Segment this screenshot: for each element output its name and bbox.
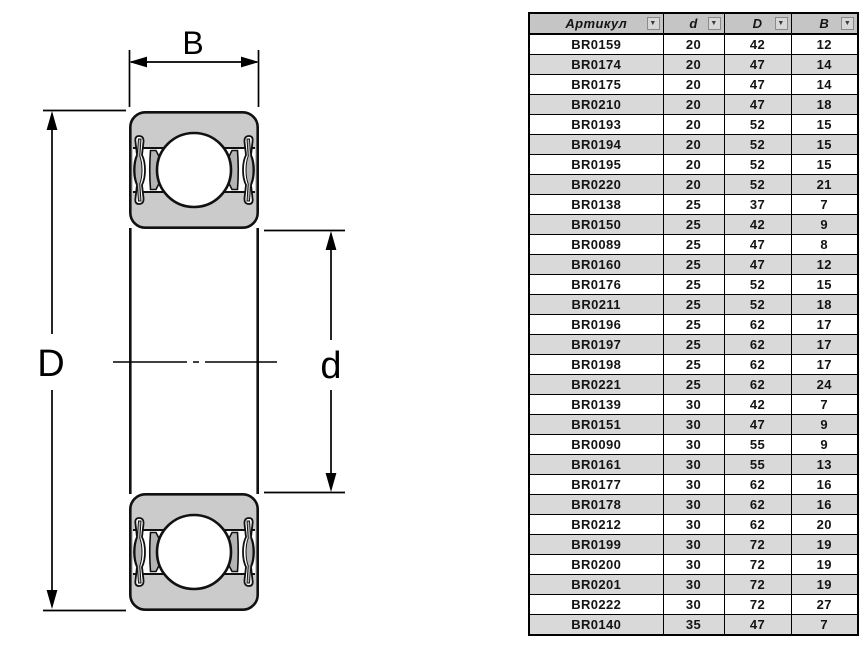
table-row: BR0193205215 <box>529 115 858 135</box>
cell-B: 12 <box>791 255 858 275</box>
cell-d: 20 <box>663 175 724 195</box>
cell-article: BR0159 <box>529 34 663 55</box>
table-row: BR0211255218 <box>529 295 858 315</box>
cell-article: BR0175 <box>529 75 663 95</box>
table-row: BR0200307219 <box>529 555 858 575</box>
cell-B: 9 <box>791 435 858 455</box>
cell-D: 72 <box>724 555 791 575</box>
cell-D: 52 <box>724 135 791 155</box>
cell-B: 7 <box>791 195 858 215</box>
table-row: BR0201307219 <box>529 575 858 595</box>
cell-article: BR0221 <box>529 375 663 395</box>
cell-article: BR0150 <box>529 215 663 235</box>
cell-B: 21 <box>791 175 858 195</box>
cell-D: 55 <box>724 455 791 475</box>
cell-B: 7 <box>791 395 858 415</box>
cell-article: BR0200 <box>529 555 663 575</box>
cell-D: 72 <box>724 535 791 555</box>
cell-B: 27 <box>791 595 858 615</box>
filter-dropdown-button-D[interactable]: ▼ <box>775 17 788 30</box>
cell-d: 25 <box>663 215 724 235</box>
bearing-spec-table: Артикул ▼ d ▼ D ▼ B ▼ <box>528 12 859 636</box>
cell-D: 52 <box>724 155 791 175</box>
cell-article: BR0210 <box>529 95 663 115</box>
table-row: BR013825377 <box>529 195 858 215</box>
cell-D: 52 <box>724 175 791 195</box>
cell-d: 25 <box>663 235 724 255</box>
cell-B: 12 <box>791 34 858 55</box>
cell-D: 37 <box>724 195 791 215</box>
cell-B: 14 <box>791 55 858 75</box>
filter-dropdown-button-d[interactable]: ▼ <box>708 17 721 30</box>
table-row: BR013930427 <box>529 395 858 415</box>
cell-D: 52 <box>724 275 791 295</box>
cell-D: 47 <box>724 255 791 275</box>
column-header-article: Артикул ▼ <box>529 13 663 34</box>
cell-d: 20 <box>663 95 724 115</box>
column-header-B: B ▼ <box>791 13 858 34</box>
cell-D: 42 <box>724 395 791 415</box>
column-header-B-label: B <box>819 16 829 31</box>
table-row: BR0210204718 <box>529 95 858 115</box>
cell-B: 19 <box>791 555 858 575</box>
cell-article: BR0197 <box>529 335 663 355</box>
table-row: BR015130479 <box>529 415 858 435</box>
table-header-row: Артикул ▼ d ▼ D ▼ B ▼ <box>529 13 858 34</box>
cell-D: 72 <box>724 595 791 615</box>
cell-article: BR0161 <box>529 455 663 475</box>
dimension-d-inner-label: d <box>320 345 341 387</box>
bearing-lower-section <box>130 494 257 609</box>
cell-B: 17 <box>791 335 858 355</box>
cell-d: 25 <box>663 315 724 335</box>
cell-d: 25 <box>663 375 724 395</box>
column-header-D: D ▼ <box>724 13 791 34</box>
cell-D: 47 <box>724 415 791 435</box>
cell-d: 30 <box>663 455 724 475</box>
bore-lines <box>130 228 257 494</box>
cell-B: 9 <box>791 215 858 235</box>
cell-d: 30 <box>663 435 724 455</box>
cell-article: BR0199 <box>529 535 663 555</box>
cell-article: BR0174 <box>529 55 663 75</box>
cell-D: 62 <box>724 315 791 335</box>
cell-B: 19 <box>791 575 858 595</box>
table-row: BR009030559 <box>529 435 858 455</box>
cell-D: 62 <box>724 355 791 375</box>
cell-article: BR0139 <box>529 395 663 415</box>
cell-d: 30 <box>663 555 724 575</box>
cell-B: 9 <box>791 415 858 435</box>
cell-B: 15 <box>791 135 858 155</box>
cell-article: BR0090 <box>529 435 663 455</box>
table-row: BR0194205215 <box>529 135 858 155</box>
cell-B: 24 <box>791 375 858 395</box>
table-row: BR0177306216 <box>529 475 858 495</box>
cell-d: 30 <box>663 415 724 435</box>
table-row: BR0178306216 <box>529 495 858 515</box>
cell-d: 20 <box>663 55 724 75</box>
cell-article: BR0194 <box>529 135 663 155</box>
cell-article: BR0178 <box>529 495 663 515</box>
cell-B: 15 <box>791 155 858 175</box>
table-row: BR0174204714 <box>529 55 858 75</box>
data-table-panel: Артикул ▼ d ▼ D ▼ B ▼ <box>528 12 858 636</box>
cell-d: 30 <box>663 595 724 615</box>
cell-article: BR0196 <box>529 315 663 335</box>
column-header-D-label: D <box>753 16 763 31</box>
cell-article: BR0198 <box>529 355 663 375</box>
cell-article: BR0193 <box>529 115 663 135</box>
filter-dropdown-icon: ▼ <box>649 18 656 29</box>
cell-D: 47 <box>724 615 791 636</box>
column-header-d-label: d <box>689 16 697 31</box>
filter-dropdown-button-article[interactable]: ▼ <box>647 17 660 30</box>
column-header-d: d ▼ <box>663 13 724 34</box>
cell-D: 42 <box>724 215 791 235</box>
table-row: BR0161305513 <box>529 455 858 475</box>
cell-D: 47 <box>724 235 791 255</box>
cell-D: 42 <box>724 34 791 55</box>
table-row: BR015025429 <box>529 215 858 235</box>
cell-B: 8 <box>791 235 858 255</box>
table-row: BR0197256217 <box>529 335 858 355</box>
cell-B: 18 <box>791 95 858 115</box>
table-row: BR0160254712 <box>529 255 858 275</box>
cell-d: 25 <box>663 195 724 215</box>
filter-dropdown-icon: ▼ <box>777 18 784 29</box>
cell-B: 13 <box>791 455 858 475</box>
cell-article: BR0138 <box>529 195 663 215</box>
cell-D: 62 <box>724 375 791 395</box>
cell-B: 17 <box>791 355 858 375</box>
cell-B: 15 <box>791 275 858 295</box>
cell-d: 30 <box>663 575 724 595</box>
cell-D: 62 <box>724 475 791 495</box>
cell-D: 47 <box>724 95 791 115</box>
cell-d: 25 <box>663 275 724 295</box>
cell-B: 17 <box>791 315 858 335</box>
cell-d: 25 <box>663 355 724 375</box>
cell-d: 30 <box>663 475 724 495</box>
cell-article: BR0220 <box>529 175 663 195</box>
diagram-panel: B D d <box>0 0 520 650</box>
cell-article: BR0195 <box>529 155 663 175</box>
cell-B: 16 <box>791 475 858 495</box>
cell-B: 15 <box>791 115 858 135</box>
table-row: BR014035477 <box>529 615 858 636</box>
dimension-d-outer-label: D <box>37 343 64 385</box>
table-body: BR0159204212BR0174204714BR0175204714BR02… <box>529 34 858 635</box>
cell-d: 20 <box>663 75 724 95</box>
cell-d: 25 <box>663 295 724 315</box>
cell-d: 25 <box>663 255 724 275</box>
cell-d: 30 <box>663 535 724 555</box>
cell-article: BR0177 <box>529 475 663 495</box>
cell-d: 20 <box>663 155 724 175</box>
table-row: BR0221256224 <box>529 375 858 395</box>
cell-B: 7 <box>791 615 858 636</box>
cell-B: 18 <box>791 295 858 315</box>
cell-B: 14 <box>791 75 858 95</box>
table-row: BR0175204714 <box>529 75 858 95</box>
cell-d: 20 <box>663 115 724 135</box>
cell-D: 62 <box>724 335 791 355</box>
table-row: BR0222307227 <box>529 595 858 615</box>
table-row: BR0198256217 <box>529 355 858 375</box>
cell-article: BR0089 <box>529 235 663 255</box>
filter-dropdown-icon: ▼ <box>710 18 717 29</box>
cell-article: BR0201 <box>529 575 663 595</box>
cell-D: 55 <box>724 435 791 455</box>
cell-d: 35 <box>663 615 724 636</box>
filter-dropdown-icon: ▼ <box>844 18 851 29</box>
cell-d: 20 <box>663 135 724 155</box>
cell-d: 30 <box>663 495 724 515</box>
table-row: BR0212306220 <box>529 515 858 535</box>
cell-article: BR0160 <box>529 255 663 275</box>
table-row: BR008925478 <box>529 235 858 255</box>
cell-article: BR0176 <box>529 275 663 295</box>
cell-article: BR0211 <box>529 295 663 315</box>
cell-D: 72 <box>724 575 791 595</box>
cell-article: BR0151 <box>529 415 663 435</box>
filter-dropdown-button-B[interactable]: ▼ <box>841 17 854 30</box>
cell-d: 20 <box>663 34 724 55</box>
table-row: BR0199307219 <box>529 535 858 555</box>
table-row: BR0195205215 <box>529 155 858 175</box>
cell-B: 20 <box>791 515 858 535</box>
cell-article: BR0222 <box>529 595 663 615</box>
table-row: BR0220205221 <box>529 175 858 195</box>
cell-D: 52 <box>724 295 791 315</box>
cell-article: BR0212 <box>529 515 663 535</box>
cell-D: 47 <box>724 75 791 95</box>
cell-article: BR0140 <box>529 615 663 636</box>
bearing-cross-section-diagram: B D d <box>0 0 520 650</box>
cell-d: 30 <box>663 395 724 415</box>
table-row: BR0196256217 <box>529 315 858 335</box>
table-row: BR0159204212 <box>529 34 858 55</box>
cell-B: 16 <box>791 495 858 515</box>
page: B D d <box>0 0 867 650</box>
table-row: BR0176255215 <box>529 275 858 295</box>
cell-D: 62 <box>724 495 791 515</box>
cell-d: 25 <box>663 335 724 355</box>
cell-D: 47 <box>724 55 791 75</box>
cell-B: 19 <box>791 535 858 555</box>
cell-D: 62 <box>724 515 791 535</box>
dimension-b-label: B <box>182 25 203 61</box>
cell-D: 52 <box>724 115 791 135</box>
column-header-article-label: Артикул <box>565 16 627 31</box>
bearing-upper-section <box>130 112 257 227</box>
cell-d: 30 <box>663 515 724 535</box>
